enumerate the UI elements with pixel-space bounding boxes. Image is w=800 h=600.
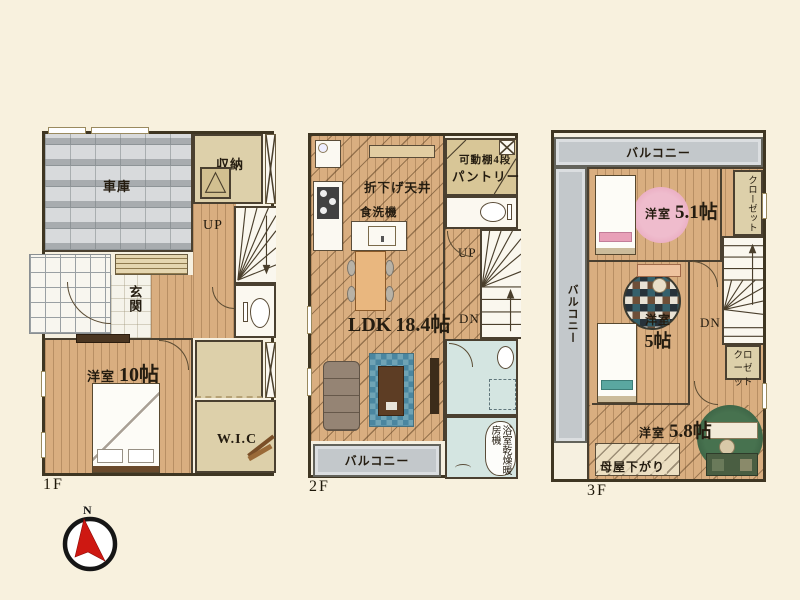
room-size: 5帖 [634, 327, 682, 353]
closet-a-label: クローゼット [744, 175, 758, 232]
window [307, 306, 312, 334]
window [762, 383, 767, 409]
washbasin [497, 346, 514, 369]
pillow [128, 449, 154, 463]
room-type: 洋室 [645, 207, 671, 221]
bath-dryer-label: 浴室乾燥暖房機 [489, 425, 511, 475]
pantry-label: パントリー [452, 171, 520, 185]
room-c-label: 洋室 5.8帖 [639, 416, 712, 443]
desk [706, 422, 758, 439]
balcony-left-label: バルコニー [566, 284, 578, 344]
stairs-drawing [724, 238, 763, 343]
floor-plan-1f: 車庫 収納 UP [42, 131, 274, 476]
bathtub: 浴室乾燥暖房機 [485, 421, 516, 476]
hall-1f [151, 275, 193, 338]
washroom [445, 339, 518, 416]
floor-label-1f: 1F [43, 476, 64, 494]
shelf-triangle-icon [202, 169, 229, 197]
table-tray [386, 402, 397, 410]
floor-plan-2f: 折下げ天井 食洗機 LDK 18.4帖 可動棚4段 パントリー UP [308, 133, 518, 478]
tv-board [76, 334, 130, 343]
entrance-area: 玄関 [111, 275, 151, 338]
burner [329, 198, 336, 205]
burner [320, 207, 327, 214]
stairs-drawing [236, 208, 276, 282]
toilet-room-1f [234, 284, 276, 338]
shoe-cabinet [115, 254, 188, 275]
room-size: 18.4帖 [395, 314, 450, 336]
sofa [323, 361, 360, 431]
compass-drawing: N [60, 501, 120, 573]
room-size: 5.1帖 [675, 202, 718, 223]
pillow [599, 232, 632, 242]
bed-footboard [598, 396, 636, 402]
x-pattern [500, 141, 514, 154]
desk [637, 264, 681, 277]
sink-basin [318, 143, 328, 153]
faucet-dot [381, 236, 384, 242]
movable-shelf-label: 可動棚4段 [459, 155, 511, 167]
stool [652, 278, 667, 293]
dining-chair [385, 260, 394, 276]
bed-footboard [596, 248, 635, 254]
shelf-box [200, 167, 231, 199]
floor-label-3f: 3F [587, 482, 608, 500]
toilet-room-2f [445, 196, 518, 229]
bedroom-5: 洋室 5帖 [592, 262, 690, 405]
kitchen-island [351, 221, 407, 251]
stairs-drawing [482, 231, 521, 337]
kitchen-counter [313, 181, 343, 251]
east-closet [265, 342, 276, 398]
x-pattern [266, 135, 275, 203]
lowered-ceiling-label: 折下げ天井 [364, 182, 432, 196]
ldk-label: LDK 18.4帖 [348, 308, 450, 337]
kitchen-sink-unit [315, 140, 341, 168]
shower-faucet [455, 464, 471, 472]
door-arc [449, 343, 473, 367]
bed [597, 323, 637, 403]
closet-b-label: クローゼット [727, 350, 759, 390]
window [307, 368, 312, 396]
storage-room: 収納 [193, 134, 263, 204]
bed [92, 383, 160, 473]
floor-plan-3f: バルコニー バルコニー 洋室 5.1帖 クローゼット [551, 130, 766, 482]
balcony-3f-left: バルコニー [554, 167, 587, 443]
cupboard [369, 145, 435, 158]
room-type: 洋室 [634, 314, 682, 327]
bed-footboard [93, 466, 159, 472]
balcony-2f: バルコニー [313, 444, 441, 477]
dishwasher-label: 食洗機 [360, 207, 398, 220]
coffee-table [378, 366, 404, 416]
dining-chair [385, 286, 394, 302]
cabinet-item [740, 459, 752, 471]
bedroom-51: 洋室 5.1帖 [589, 169, 722, 262]
toilet-bowl [250, 298, 270, 328]
cabinet-item [712, 459, 724, 471]
compass-north-label: N [83, 503, 92, 517]
stairs-up-label-1f: UP [203, 218, 223, 233]
stairs-3f [722, 236, 763, 345]
balcony-label: バルコニー [315, 455, 439, 468]
stove [317, 187, 339, 219]
room-type: LDK [348, 314, 391, 336]
entrance-label: 玄関 [127, 285, 141, 313]
toilet-tank [243, 302, 248, 322]
garage-label: 車庫 [103, 180, 131, 194]
toilet-bowl [480, 202, 506, 222]
bedroom-58: 洋室 5.8帖 母屋下がり [589, 405, 763, 479]
bed [595, 175, 636, 255]
stairs-dn-label-3f: DN [700, 316, 721, 330]
cabinet [706, 453, 758, 476]
x-pattern [266, 343, 275, 397]
garage-door-opening [48, 127, 86, 134]
room-a-label: 洋室 5.1帖 [645, 197, 718, 224]
tv-board [430, 358, 439, 414]
floor-label-2f: 2F [309, 478, 330, 496]
stairs-2f [480, 229, 521, 339]
dining-table [355, 251, 386, 311]
bathroom: 浴室乾燥暖房機 [445, 416, 518, 479]
window [41, 371, 46, 397]
stairs-dn-label-2f: DN [459, 312, 480, 326]
burner [320, 190, 327, 197]
window [41, 432, 46, 458]
toilet-tank [507, 204, 512, 220]
pillow [97, 449, 123, 463]
balcony-top-label: バルコニー [556, 147, 761, 160]
compass: N [60, 501, 120, 573]
room-b-label: 洋室 5帖 [634, 314, 682, 353]
floorplan-canvas: 車庫 収納 UP [0, 0, 800, 600]
closet-a: クローゼット [733, 170, 763, 236]
garage-door-opening [91, 127, 149, 134]
pillow [601, 380, 633, 390]
room-type: 洋室 [639, 426, 665, 440]
garage-area: 車庫 [45, 134, 193, 252]
walk-in-closet: W.I.C [195, 400, 276, 473]
window [762, 193, 767, 219]
balcony-3f-top: バルコニー [554, 137, 763, 167]
shaft-closet [265, 134, 276, 204]
stairs-1f [234, 206, 276, 284]
closet-b: クローゼット [725, 345, 761, 380]
moya-sagari-label: 母屋下がり [598, 461, 667, 474]
east-room [195, 340, 263, 398]
moya-sagari-area: 母屋下がり [595, 443, 680, 476]
room-size: 5.8帖 [669, 421, 712, 442]
room-type: 洋室 [87, 369, 115, 384]
pipe-shaft [499, 140, 515, 155]
washing-machine-space [489, 379, 516, 410]
